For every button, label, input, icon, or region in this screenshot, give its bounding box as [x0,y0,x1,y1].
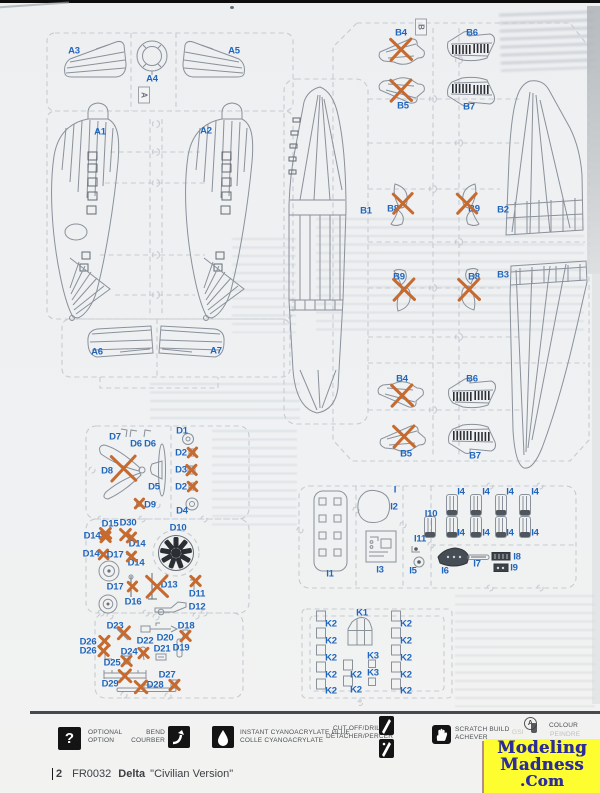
part-label-d9: D9 [144,500,156,511]
instruction-sheet-page: AA3A4A5A1A2A6A7BB4B6B5B7B1B8B9B2B9B8B3B4… [0,0,600,793]
legend-bend-text: BENDCOURBER [118,729,165,745]
part-label-i4: I4 [506,528,514,539]
part-label-k2: K2 [325,636,337,647]
part-label-i4: I4 [457,528,465,539]
part-label-i4: I4 [506,487,514,498]
part-label-k2: K2 [400,653,412,664]
watermark-line2: Madness [484,756,600,773]
modelingmadness-watermark: Modeling Madness .Com [484,739,600,793]
part-label-d6: D6 [130,439,142,450]
not-used-cross-icon [121,655,134,668]
part-label-a6: A6 [91,347,103,358]
not-used-cross-icon [117,626,132,641]
part-label-d5: D5 [148,482,160,493]
part-label-d7: D7 [109,432,121,443]
not-used-cross-icon [389,383,415,409]
part-label-a4: A4 [146,74,158,85]
part-label-i2: I2 [390,502,398,513]
scan-right-edge-lower [592,274,600,704]
part-label-b5: B5 [400,449,412,460]
not-used-cross-icon [190,575,203,588]
kit-code: FR0032 [72,768,111,780]
part-label-d19: D19 [173,643,190,654]
part-label-i10: I10 [425,509,438,520]
not-used-cross-icon [118,669,133,684]
part-label-a7: A7 [210,346,222,357]
not-used-cross-icon [455,192,479,216]
part-label-d29: D29 [102,679,119,690]
part-label-i3: I3 [376,565,384,576]
part-label-b7: B7 [469,451,481,462]
part-label-b6: B6 [466,28,478,39]
legend-colour-text: COLOUR [549,722,578,730]
not-used-cross-icon [144,574,170,600]
part-label-k2: K2 [325,670,337,681]
part-label-i4: I4 [457,487,465,498]
watermark-line1: Modeling [484,739,600,756]
part-label-k2: K2 [325,686,337,697]
not-used-cross-icon [125,551,137,563]
part-label-d10: D10 [170,523,187,534]
part-label-k3: K3 [367,651,379,662]
part-label-b6: B6 [466,374,478,385]
part-label-k2: K2 [400,636,412,647]
not-used-cross-icon [126,581,138,593]
part-label-d26: D26 [80,646,97,657]
part-label-d6: D6 [144,439,156,450]
part-label-a3: A3 [68,46,80,57]
part-label-i: I [394,485,396,496]
part-label-d28: D28 [147,680,164,691]
question-icon: ? [58,727,81,750]
bend-icon [168,726,190,748]
section-separator-line [30,711,600,714]
not-used-cross-icon [180,630,193,643]
scan-speck-artifact [230,6,234,9]
page-footer: 2FR0032Delta"Civilian Version" [52,768,233,780]
knife-icon [379,716,394,735]
part-label-b7: B7 [463,102,475,113]
part-label-d21: D21 [154,644,171,655]
part-label-d22: D22 [137,636,154,647]
sprue-tag-b: B [415,19,427,36]
part-label-k2: K2 [325,653,337,664]
part-label-k2: K2 [400,619,412,630]
watermark-line3: .Com [484,773,600,790]
not-used-cross-icon [98,645,111,658]
kit-name: Delta [118,768,145,780]
page-number: 2 [52,768,62,780]
part-label-d11: D11 [189,589,205,600]
part-labels-layer: AA3A4A5A1A2A6A7BB4B6B5B7B1B8B9B2B9B8B3B4… [0,0,600,793]
part-label-a1: A1 [94,127,106,138]
not-used-cross-icon [391,192,415,216]
part-label-k2: K2 [400,670,412,681]
part-label-a5: A5 [228,46,240,57]
not-used-cross-icon [388,37,414,63]
part-label-i1: I1 [326,569,334,580]
part-label-d12: D12 [189,602,206,613]
part-label-b2: B2 [497,205,509,216]
part-label-k2: K2 [350,670,362,681]
part-label-b1: B1 [360,206,372,217]
part-label-i9: I9 [510,563,518,574]
part-label-k1: K1 [356,608,368,619]
paint-bottle-icon [531,723,537,733]
part-label-i8: I8 [513,552,521,563]
not-used-cross-icon [391,277,417,303]
part-label-d20: D20 [157,633,174,644]
part-label-d17: D17 [107,550,124,561]
part-label-d4: D4 [176,506,188,517]
not-used-cross-icon [169,679,182,692]
part-label-i4: I4 [531,528,539,539]
part-label-i4: I4 [482,487,490,498]
not-used-cross-icon [391,424,417,450]
part-label-b3: B3 [497,270,509,281]
part-label-k2: K2 [325,619,337,630]
part-label-d17: D17 [107,582,124,593]
droplet-icon [212,726,234,748]
not-used-cross-icon [186,481,198,493]
part-label-k2: K2 [350,685,362,696]
part-label-i4: I4 [531,487,539,498]
not-used-cross-icon [100,531,113,544]
part-label-d1: D1 [176,426,188,437]
not-used-cross-icon [186,447,198,459]
part-label-i11: I11 [414,534,426,545]
part-label-d16: D16 [125,597,142,608]
sprue-tag-a: A [138,87,150,104]
legend-gsi-note: GSI [512,729,524,737]
part-label-d30: D30 [120,518,137,529]
part-label-k2: K2 [400,686,412,697]
part-label-d25: D25 [104,658,121,669]
part-label-i7: I7 [473,559,481,570]
not-used-cross-icon [138,647,151,660]
not-used-cross-icon [456,277,482,303]
not-used-cross-icon [109,454,139,484]
scan-top-edge [0,0,600,3]
part-label-i4: I4 [482,528,490,539]
scan-right-edge [587,6,600,274]
not-used-cross-icon [125,532,137,544]
part-label-i5: I5 [409,566,417,577]
part-label-a2: A2 [200,126,212,137]
part-label-k3: K3 [367,668,379,679]
not-used-cross-icon [388,78,414,104]
not-used-cross-icon [133,498,145,510]
kit-variant: "Civilian Version" [150,768,233,780]
not-used-cross-icon [134,680,149,695]
hand-icon [432,725,451,744]
not-used-cross-icon [186,464,199,477]
part-label-i6: I6 [441,566,449,577]
drill-icon [379,739,394,758]
